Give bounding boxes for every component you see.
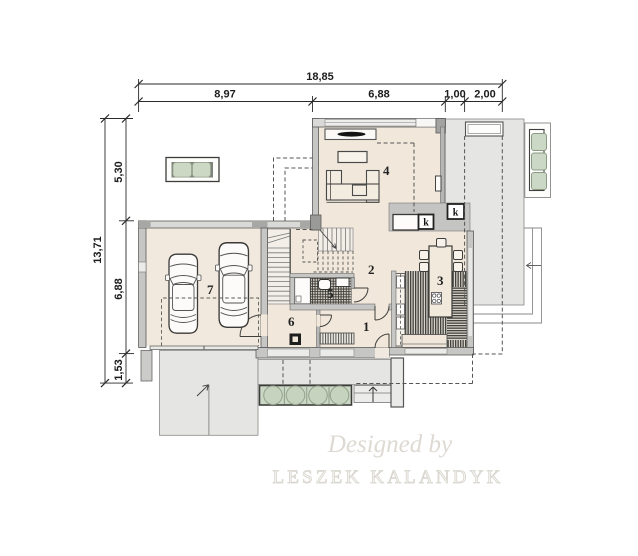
svg-text:k: k: [423, 218, 429, 229]
svg-text:k: k: [453, 208, 459, 219]
svg-text:2,00: 2,00: [474, 89, 495, 101]
svg-text:4: 4: [383, 163, 390, 178]
svg-text:5: 5: [327, 286, 334, 301]
svg-text:7: 7: [207, 282, 214, 297]
svg-text:1,00: 1,00: [444, 89, 465, 101]
svg-text:8,97: 8,97: [214, 89, 235, 101]
svg-text:LESZEK KALANDYK: LESZEK KALANDYK: [272, 467, 503, 488]
svg-text:18,85: 18,85: [306, 71, 334, 83]
svg-text:5,30: 5,30: [113, 161, 125, 182]
svg-text:1,53: 1,53: [113, 359, 125, 380]
svg-text:1: 1: [363, 319, 370, 334]
svg-text:13,71: 13,71: [92, 236, 104, 264]
svg-text:Designed by: Designed by: [327, 431, 453, 458]
svg-text:2: 2: [368, 262, 375, 277]
svg-text:6: 6: [288, 314, 295, 329]
svg-text:3: 3: [437, 273, 444, 288]
svg-text:6,88: 6,88: [113, 278, 125, 299]
svg-text:6,88: 6,88: [368, 89, 389, 101]
